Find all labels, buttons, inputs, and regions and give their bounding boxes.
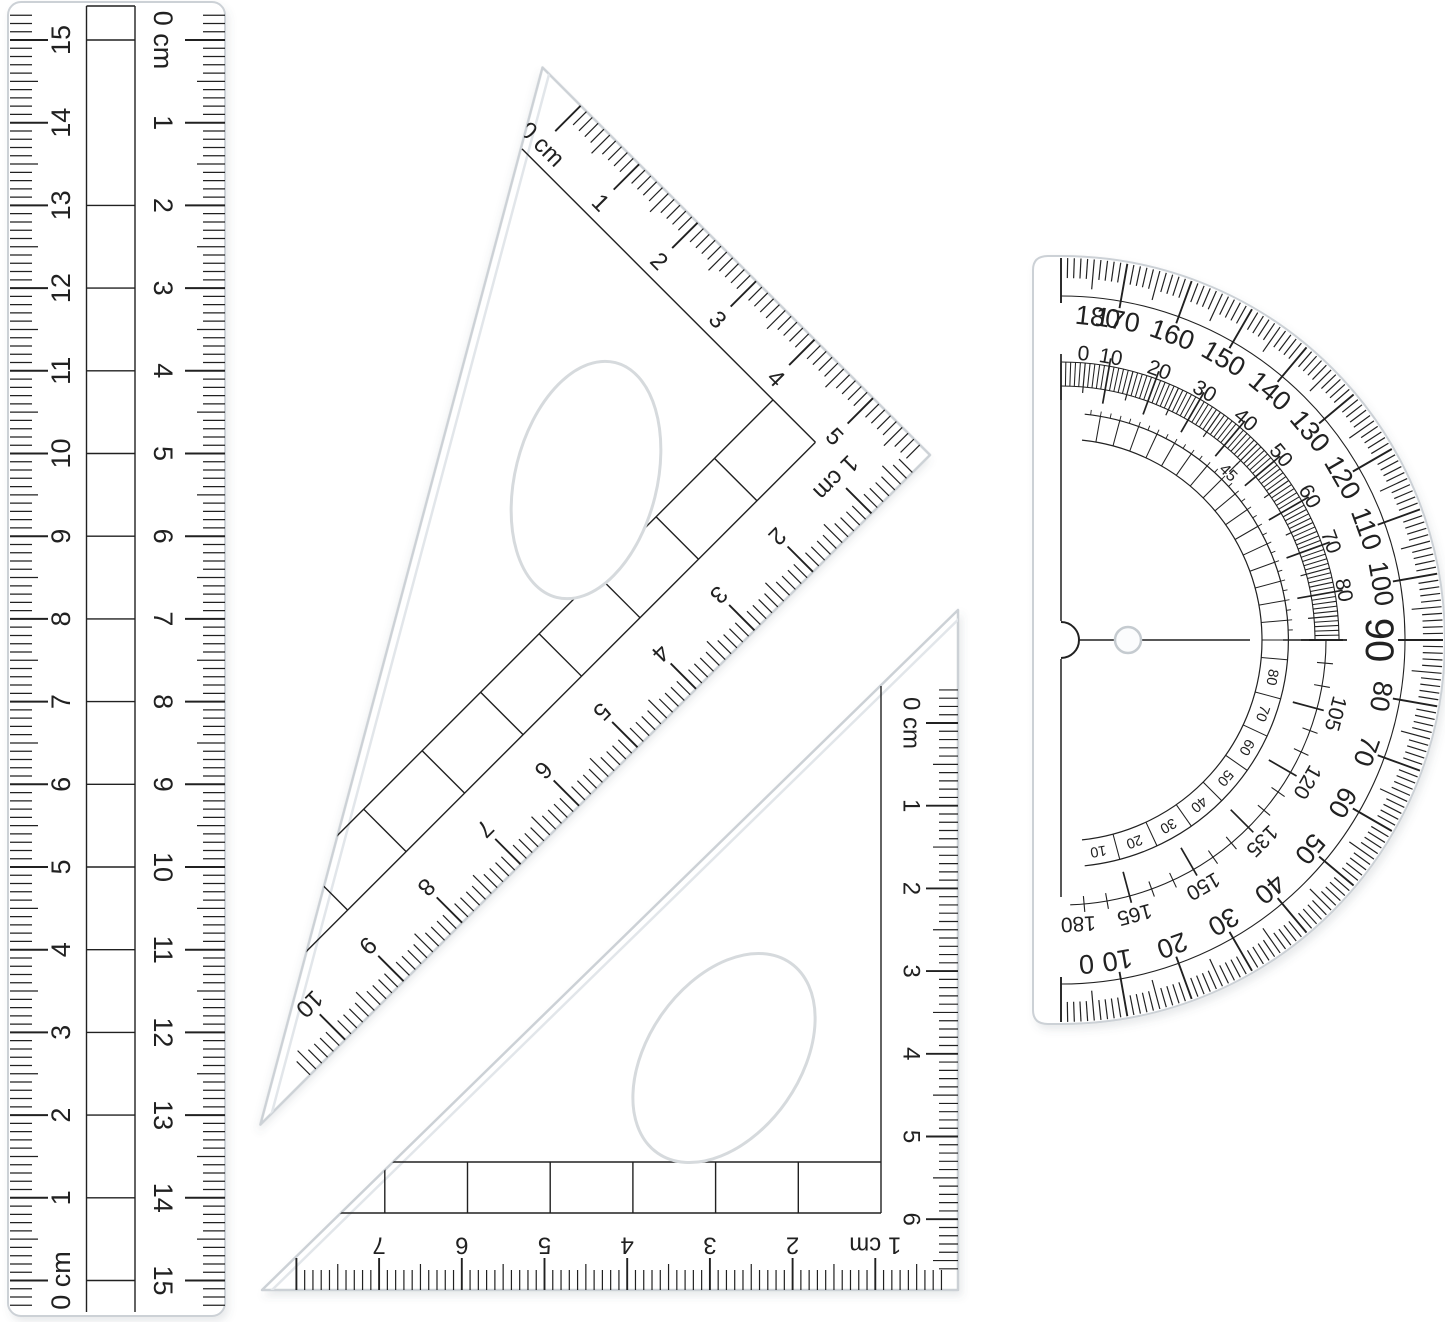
scale-label: 6: [455, 1232, 468, 1259]
scale-label: 8: [148, 694, 178, 709]
scale-label: 4: [46, 942, 76, 957]
scale-label: 13: [148, 1100, 178, 1130]
scale-label: 14: [148, 1183, 178, 1213]
ruler-body: [8, 2, 225, 1316]
geometry-set-photo: 1514131211109876543210 cm0 cm12345678910…: [0, 0, 1445, 1322]
scale-label: 3: [148, 281, 178, 296]
scale-label: 180: [1060, 911, 1096, 936]
ruler-15cm: 1514131211109876543210 cm0 cm12345678910…: [8, 2, 225, 1316]
scale-label: 3: [703, 1232, 716, 1259]
scale-label: 5: [46, 859, 76, 874]
scale-label: 80: [1262, 668, 1281, 687]
scale-label: 13: [46, 190, 76, 220]
geometry-set-canvas: 1514131211109876543210 cm0 cm12345678910…: [0, 0, 1445, 1322]
scale-label: 15: [46, 25, 76, 55]
scale-label: 14: [46, 108, 76, 138]
scale-label: 6: [898, 1213, 925, 1226]
scale-label: 0: [1078, 948, 1095, 979]
scale-label: 6: [148, 529, 178, 544]
scale-label: 4: [621, 1232, 634, 1259]
scale-label: 5: [538, 1232, 551, 1259]
scale-label: 80: [1364, 679, 1399, 714]
scale-label: 10: [46, 438, 76, 468]
scale-label: 3: [898, 964, 925, 977]
scale-label: 1: [46, 1190, 76, 1205]
scale-label: 2: [46, 1108, 76, 1123]
scale-label: 11: [46, 357, 76, 385]
scale-label: 90: [1357, 618, 1401, 663]
scale-label: 4: [898, 1047, 925, 1060]
scale-label: 9: [148, 777, 178, 792]
scale-label: 5: [898, 1130, 925, 1143]
scale-label: 12: [148, 1017, 178, 1047]
scale-label: 0 cm: [898, 697, 925, 749]
scale-label: 12: [46, 273, 76, 303]
scale-label: 1: [148, 115, 178, 130]
scale-label: 7: [46, 694, 76, 709]
scale-label: 7: [372, 1232, 385, 1259]
scale-label: 7: [148, 611, 178, 626]
center-hole: [1115, 627, 1141, 653]
scale-label: 6: [46, 777, 76, 792]
scale-label: 5: [148, 446, 178, 461]
protractor-180: 1801701601501401301201101009080706050403…: [1033, 256, 1445, 1024]
scale-label: 4: [148, 363, 178, 378]
scale-label: 1 cm: [849, 1232, 901, 1259]
scale-label: 10: [1100, 943, 1135, 978]
scale-label: 15: [148, 1265, 178, 1295]
scale-label: 8: [46, 611, 76, 626]
scale-label: 10: [148, 852, 178, 882]
scale-label: 2: [786, 1232, 799, 1259]
scale-label: 1: [898, 799, 925, 812]
scale-label: 0 cm: [46, 1251, 76, 1310]
scale-label: 2: [148, 198, 178, 213]
scale-label: 3: [46, 1025, 76, 1040]
scale-label: 2: [898, 882, 925, 895]
scale-label: 0 cm: [148, 11, 178, 70]
scale-label: 11: [148, 936, 178, 964]
scale-label: 10: [1089, 841, 1108, 860]
scale-label: 9: [46, 529, 76, 544]
